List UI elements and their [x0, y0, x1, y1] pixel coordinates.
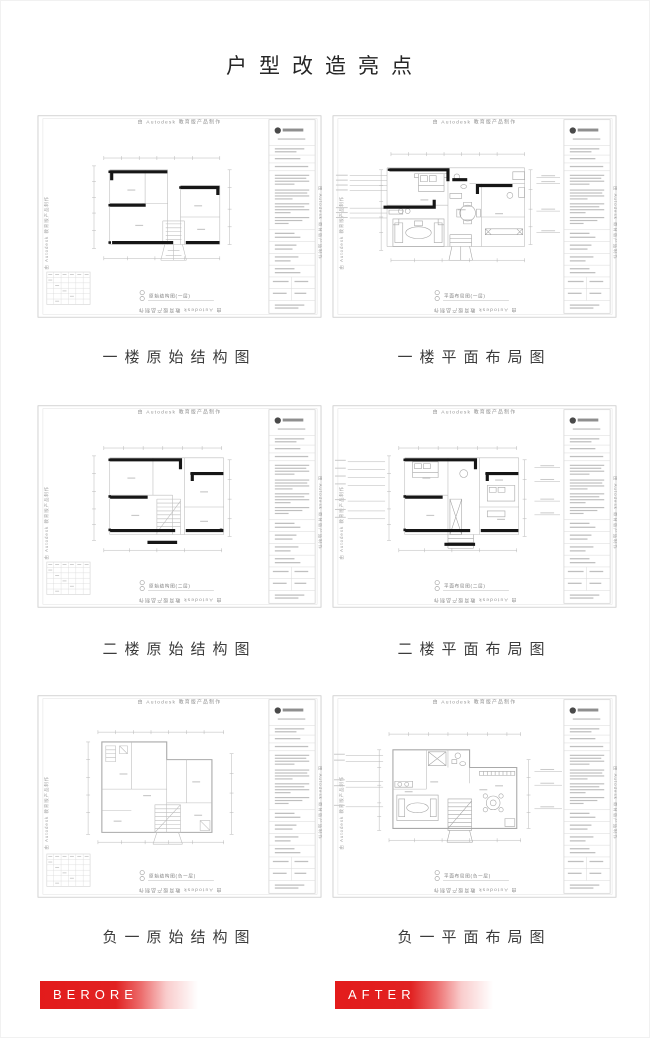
- autodesk-watermark-bottom: 由 Autodesk 教育版产品制作: [138, 306, 222, 313]
- floor-plan-b1-original: 由 Autodesk 教育版产品制作 由 Autodesk 教育版产品制作 由 …: [37, 693, 322, 900]
- floor-plan-2f-original: 由 Autodesk 教育版产品制作 由 Autodesk 教育版产品制作 由 …: [37, 403, 322, 610]
- cad-sheet: 由 Autodesk 教育版产品制作 由 Autodesk 教育版产品制作 由 …: [332, 693, 617, 900]
- before-ribbon: BERORE: [40, 981, 198, 1009]
- title-block: [564, 700, 610, 894]
- caption-b1-layout: 负一平面布局图: [332, 926, 617, 947]
- autodesk-watermark-top: 由 Autodesk 教育版产品制作: [138, 119, 222, 126]
- cad-sheet: 由 Autodesk 教育版产品制作 由 Autodesk 教育版产品制作 由 …: [37, 403, 322, 610]
- after-ribbon: AFTER: [335, 981, 493, 1009]
- article-page: 户型改造亮点 由 Autodesk 教育版产品制作 由 Autodesk 教育版…: [0, 0, 650, 1038]
- sheet-label: 平面布局图(一层): [444, 293, 486, 300]
- sheet-label: 原始结构图(负一层): [149, 873, 196, 880]
- title-block: [564, 410, 610, 604]
- legend-table: [47, 854, 90, 886]
- caption-2f-layout: 二楼平面布局图: [332, 638, 617, 659]
- sheet-label: 平面布局图(负一层): [444, 873, 491, 880]
- title-block: [269, 120, 315, 314]
- page-title: 户型改造亮点: [0, 50, 650, 80]
- floor-plan-1f-layout: 由 Autodesk 教育版产品制作 由 Autodesk 教育版产品制作 由 …: [332, 113, 617, 320]
- autodesk-watermark-bottom: 由 Autodesk 教育版产品制作: [433, 886, 517, 893]
- caption-1f-layout: 一楼平面布局图: [332, 346, 617, 367]
- autodesk-watermark-top: 由 Autodesk 教育版产品制作: [138, 699, 222, 706]
- cad-sheet: 由 Autodesk 教育版产品制作 由 Autodesk 教育版产品制作 由 …: [332, 403, 617, 610]
- autodesk-watermark-left: 由 Autodesk 教育版产品制作: [338, 486, 345, 560]
- caption-b1-original: 负一原始结构图: [37, 926, 322, 947]
- autodesk-watermark-bottom: 由 Autodesk 教育版产品制作: [138, 596, 222, 603]
- autodesk-watermark-left: 由 Autodesk 教育版产品制作: [43, 776, 50, 850]
- autodesk-watermark-top: 由 Autodesk 教育版产品制作: [433, 119, 517, 126]
- autodesk-watermark-bottom: 由 Autodesk 教育版产品制作: [433, 306, 517, 313]
- title-block: [269, 700, 315, 894]
- legend-table: [47, 272, 90, 304]
- cad-sheet: 由 Autodesk 教育版产品制作 由 Autodesk 教育版产品制作 由 …: [37, 113, 322, 320]
- caption-1f-original: 一楼原始结构图: [37, 346, 322, 367]
- floor-plan-b1-layout: 由 Autodesk 教育版产品制作 由 Autodesk 教育版产品制作 由 …: [332, 693, 617, 900]
- autodesk-watermark-left: 由 Autodesk 教育版产品制作: [338, 196, 345, 270]
- legend-table: [47, 562, 90, 594]
- caption-2f-original: 二楼原始结构图: [37, 638, 322, 659]
- autodesk-watermark-left: 由 Autodesk 教育版产品制作: [338, 776, 345, 850]
- cad-sheet: 由 Autodesk 教育版产品制作 由 Autodesk 教育版产品制作 由 …: [332, 113, 617, 320]
- autodesk-watermark-bottom: 由 Autodesk 教育版产品制作: [138, 886, 222, 893]
- sheet-label: 平面布局图(二层): [444, 583, 486, 590]
- cad-sheet: 由 Autodesk 教育版产品制作 由 Autodesk 教育版产品制作 由 …: [37, 693, 322, 900]
- title-block: [564, 120, 610, 314]
- title-block: [269, 410, 315, 604]
- autodesk-watermark-top: 由 Autodesk 教育版产品制作: [433, 699, 517, 706]
- autodesk-watermark-left: 由 Autodesk 教育版产品制作: [43, 486, 50, 560]
- autodesk-watermark-top: 由 Autodesk 教育版产品制作: [433, 409, 517, 416]
- autodesk-watermark-top: 由 Autodesk 教育版产品制作: [138, 409, 222, 416]
- floor-plan-1f-original: 由 Autodesk 教育版产品制作 由 Autodesk 教育版产品制作 由 …: [37, 113, 322, 320]
- autodesk-watermark-left: 由 Autodesk 教育版产品制作: [43, 196, 50, 270]
- floor-plan-2f-layout: 由 Autodesk 教育版产品制作 由 Autodesk 教育版产品制作 由 …: [332, 403, 617, 610]
- autodesk-watermark-bottom: 由 Autodesk 教育版产品制作: [433, 596, 517, 603]
- sheet-label: 原始结构图(一层): [149, 293, 191, 300]
- sheet-label: 原始结构图(二层): [149, 583, 191, 590]
